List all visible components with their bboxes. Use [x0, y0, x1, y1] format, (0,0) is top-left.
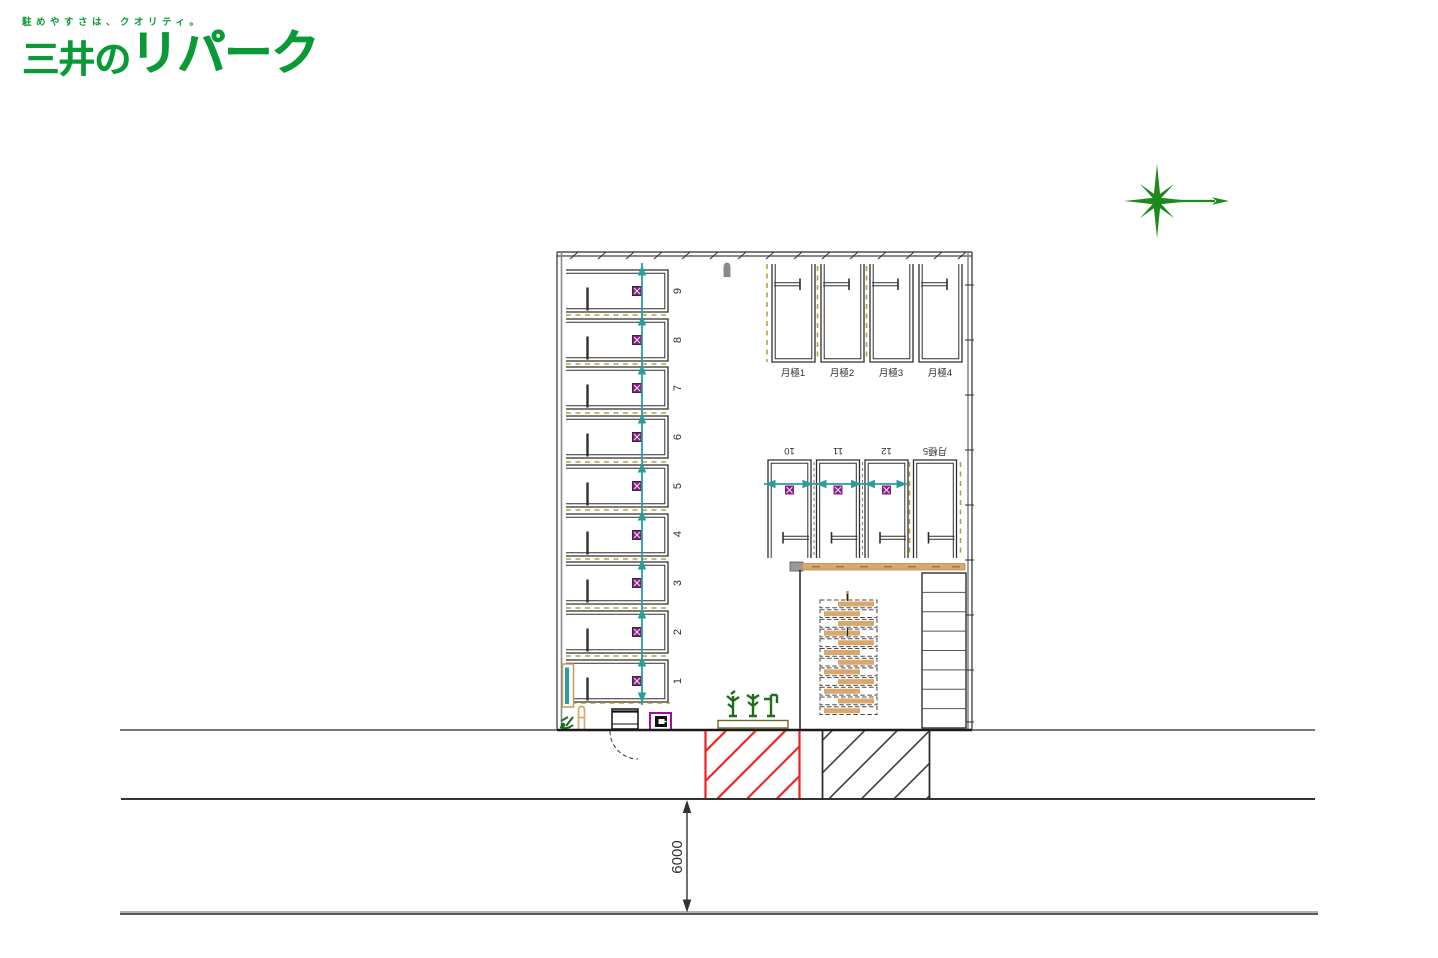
stall-label: 1 — [672, 678, 684, 684]
plants-row — [727, 691, 777, 716]
stall-label: 8 — [672, 337, 684, 343]
stall-label: 6 — [672, 434, 684, 440]
stall-divider-lines — [562, 315, 670, 703]
site-plan-drawing: 9 8 7 6 5 4 3 2 1 月極1 月極2 月極3 — [0, 0, 1438, 958]
hedge-planting — [820, 591, 877, 715]
plan-boundary-fence — [557, 252, 974, 730]
driveway-hatch-black — [823, 731, 930, 798]
pay-machine — [610, 709, 638, 759]
dimension-road-width: 6000 — [669, 800, 691, 913]
stall-label: 12 — [881, 445, 892, 456]
boundary-wall-tan — [790, 562, 965, 571]
entrance-signboard — [563, 664, 574, 707]
door-swing-arc — [610, 731, 638, 759]
stall-label: 月極3 — [879, 367, 903, 379]
bollard-tan — [579, 707, 585, 731]
stall-label: 11 — [833, 445, 843, 456]
logo-tagline: 駐めやすさは、クオリティ。 — [22, 14, 318, 28]
planter-box — [718, 721, 788, 729]
stall-row-top-monthly: 月極1 月極2 月極3 月極4 — [767, 264, 962, 379]
stall-label: 月極1 — [781, 367, 805, 379]
stall-number-labels-left: 9 8 7 6 5 4 3 2 1 — [672, 288, 684, 684]
page: 駐めやすさは、クオリティ。 三井の リパーク — [0, 0, 1438, 958]
bollard-gray — [724, 263, 731, 278]
stall-column-left: 9 8 7 6 5 4 3 2 1 — [562, 263, 684, 705]
stall-label: 3 — [672, 580, 684, 586]
stall-label: 5 — [672, 483, 684, 489]
stall-label: 月極2 — [830, 367, 854, 379]
stall-label: 月極4 — [928, 367, 952, 379]
plant-icon — [727, 691, 739, 716]
north-compass-icon — [1124, 164, 1229, 238]
stall-row-middle: 10 11 12 月極5 — [764, 445, 961, 558]
stall-label: 4 — [672, 531, 684, 537]
driveway-hatch-red — [706, 731, 800, 798]
staircase — [922, 573, 966, 728]
logo-brand-prefix: 三井の — [22, 41, 130, 78]
stall-label: 10 — [784, 445, 795, 456]
stall-label: 2 — [672, 629, 684, 635]
logo-brand-main: リパーク — [130, 30, 318, 78]
stall-divider-lines — [814, 462, 961, 556]
plant-icon — [747, 694, 759, 716]
stall-label: 月極5 — [923, 445, 947, 457]
plant-icon — [764, 695, 777, 716]
sign-machine — [650, 713, 671, 730]
repark-logo: 駐めやすさは、クオリティ。 三井の リパーク — [22, 14, 318, 78]
stall-divider-lines — [767, 264, 867, 362]
stall-label: 7 — [672, 385, 684, 391]
stall-label: 9 — [672, 288, 684, 294]
logo-brand: 三井の リパーク — [22, 30, 318, 78]
dimension-label: 6000 — [669, 840, 686, 873]
